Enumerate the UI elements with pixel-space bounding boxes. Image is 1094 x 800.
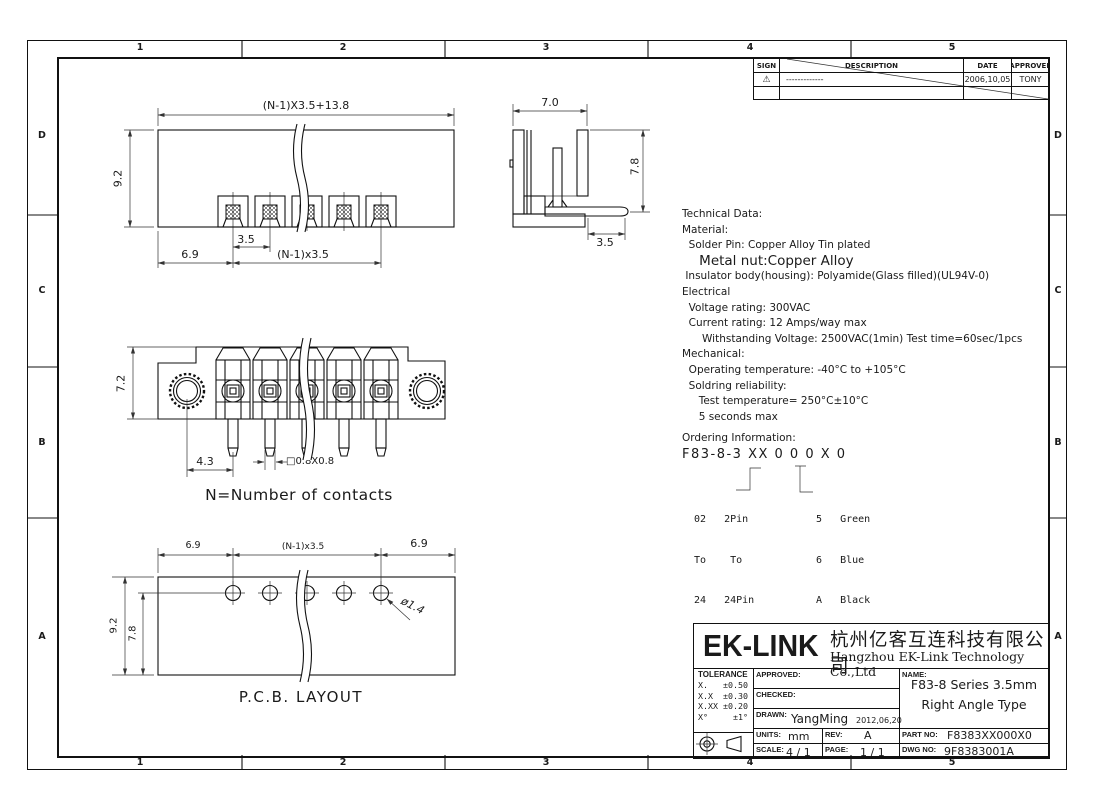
revision-description: ------------- [779, 72, 963, 86]
side-section-view [510, 104, 650, 240]
ordering-option: 24 24Pin [694, 594, 754, 608]
drawn-value: YangMing [791, 712, 848, 726]
tech-line: Withstanding Voltage: 2500VAC(1min) Test… [682, 332, 1062, 348]
scale-cell: SCALE: 4 / 1 [753, 743, 823, 758]
part-no-cell: PART NO: F8383XX000X0 [899, 728, 1049, 744]
revision-date: 2006,10,05 [963, 72, 1011, 86]
page-value: 1 / 1 [860, 746, 885, 759]
tech-line: Test temperature= 250°C±10°C [682, 394, 1062, 410]
revision-table: SIGN DESCRIPTION DATE APPROVER ⚠ -------… [753, 58, 1050, 100]
drawing-sheet: 1 2 3 4 5 1 2 3 4 5 D C B A D C B A SIGN… [0, 0, 1094, 800]
approved-label: APPROVED: [756, 670, 801, 679]
scale-label: SCALE: [756, 745, 784, 754]
tech-line: Electrical [682, 285, 1062, 301]
tolerance-box: TOLERANCE X. ±0.50 X.X ±0.30 X.XX ±0.20 … [694, 668, 754, 733]
revision-approver: TONY [1011, 72, 1049, 86]
units-value: mm [788, 730, 809, 743]
ordering-part-code: F83-8-3 XX 0 0 0 X 0 [682, 447, 1062, 463]
ordering-option: 6 Blue [816, 554, 870, 568]
part-no-value: F8383XX000X0 [947, 729, 1032, 742]
tolerance-row: X. ±0.50 [694, 680, 753, 691]
tolerance-row: X.X ±0.30 [694, 691, 753, 702]
revision-header: DATE [963, 59, 1011, 72]
ordering-option: 5 Green [816, 513, 870, 527]
tolerance-row: X.XX ±0.20 [694, 701, 753, 712]
ordering-option: A Black [816, 594, 870, 608]
rev-label: REV: [825, 730, 843, 739]
tolerance-title: TOLERANCE [694, 668, 753, 680]
drawn-date: 2012,06,20 [856, 716, 902, 725]
dwg-no-value: 9F8383001A [944, 745, 1014, 758]
revision-header: SIGN [754, 59, 779, 72]
tech-line: Voltage rating: 300VAC [682, 301, 1062, 317]
rev-value: A [864, 729, 872, 742]
drawn-cell: DRAWN: YangMing 2012,06,20 [753, 708, 900, 729]
page-cell: PAGE: 1 / 1 [822, 743, 900, 758]
ordering-option: To To [694, 554, 754, 568]
tech-line: Mechanical: [682, 347, 1062, 363]
ordering-info-heading: Ordering Information: [682, 431, 1062, 447]
tech-line: Current rating: 12 Amps/way max [682, 316, 1062, 332]
units-cell: UNITS: mm [753, 728, 823, 744]
tech-line: Solder Pin: Copper Alloy Tin plated [682, 238, 1062, 254]
title-block-logo-row: EK-LINK 杭州亿客互连科技有限公司 Hangzhou EK-Link Te… [694, 624, 1049, 669]
tech-line: Technical Data: [682, 207, 1062, 223]
projection-symbol-icon [694, 732, 750, 756]
ordering-pin-options: 02 2Pin To To 24 24Pin [694, 486, 754, 635]
tech-line: 5 seconds max [682, 410, 1062, 426]
tech-line: Material: [682, 223, 1062, 239]
pcb-layout-view [112, 548, 455, 682]
revision-header: APPROVER [1011, 59, 1049, 72]
dwg-no-label: DWG NO: [902, 745, 936, 754]
rev-cell: REV: A [822, 728, 900, 744]
tech-line: Metal nut:Copper Alloy [682, 254, 1062, 270]
name-cell: NAME: F83-8 Series 3.5mm Right Angle Typ… [899, 668, 1049, 729]
tech-line: Operating temperature: -40°C to +105°C [682, 363, 1062, 379]
top-view [124, 108, 454, 268]
tech-line: Insulator body(housing): Polyamide(Glass… [682, 269, 1062, 285]
company-logo: EK-LINK [703, 628, 819, 664]
checked-label: CHECKED: [756, 690, 796, 699]
dwg-no-cell: DWG NO: 9F8383001A [899, 743, 1049, 758]
drawn-label: DRAWN: [756, 710, 787, 719]
part-name-line2: Right Angle Type [899, 697, 1049, 712]
tolerance-row: X° ±1° [694, 712, 753, 723]
part-no-label: PART NO: [902, 730, 938, 739]
units-label: UNITS: [756, 730, 781, 739]
revision-header: DESCRIPTION [779, 59, 963, 72]
projection-symbol-box [694, 732, 754, 758]
tech-line: Soldring reliability: [682, 379, 1062, 395]
ordering-color-options: 5 Green 6 Blue A Black [816, 486, 870, 635]
revision-sign-icon: ⚠ [754, 72, 779, 86]
scale-value: 4 / 1 [786, 746, 811, 759]
checked-cell: CHECKED: [753, 688, 900, 709]
title-block: EK-LINK 杭州亿客互连科技有限公司 Hangzhou EK-Link Te… [693, 623, 1050, 759]
ordering-option: 02 2Pin [694, 513, 754, 527]
front-view [127, 338, 445, 477]
page-label: PAGE: [825, 745, 848, 754]
technical-data-block: Technical Data: Material: Solder Pin: Co… [682, 207, 1062, 463]
part-name-line1: F83-8 Series 3.5mm [899, 677, 1049, 692]
approved-cell: APPROVED: [753, 668, 900, 689]
